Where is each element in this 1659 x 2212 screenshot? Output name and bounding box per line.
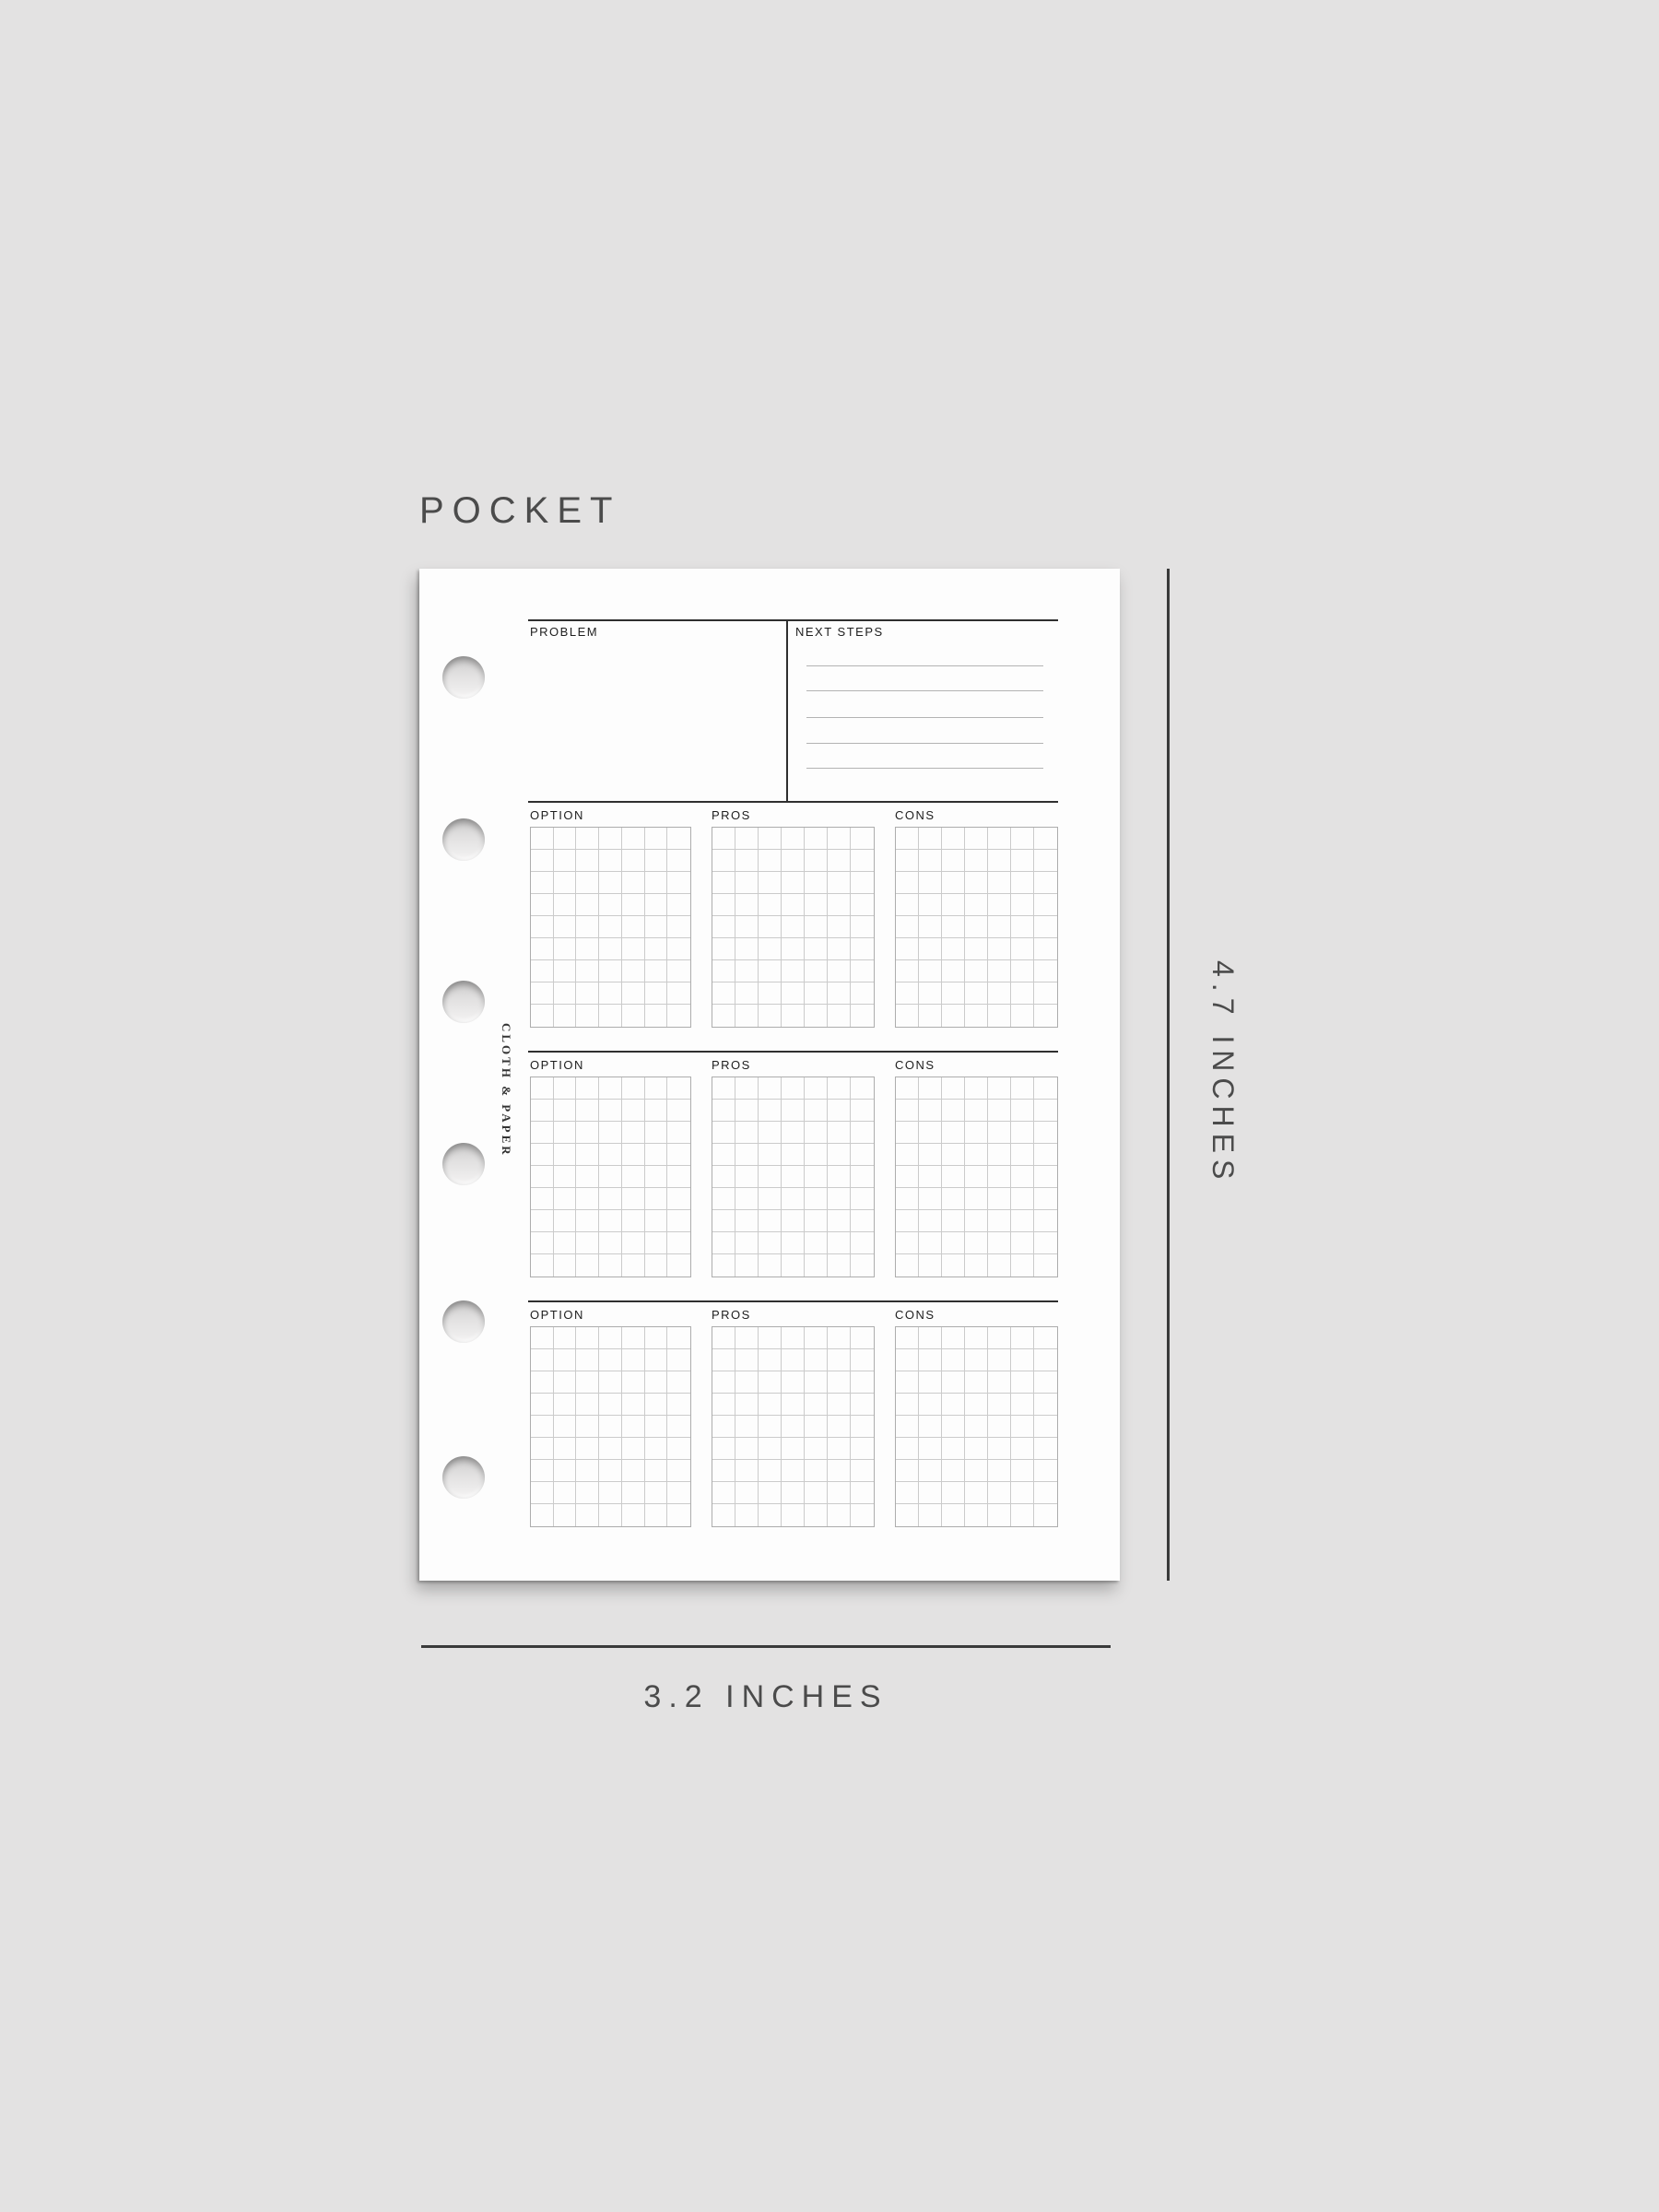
grid-cell <box>851 1371 874 1394</box>
cons-grid <box>895 1077 1058 1277</box>
grid-cell <box>622 1210 645 1232</box>
grid-cell <box>645 1394 668 1416</box>
grid-cell <box>576 1077 599 1100</box>
grid-cell <box>622 1349 645 1371</box>
grid-cell <box>712 1100 735 1122</box>
grid-cell <box>712 1232 735 1254</box>
grid-cell <box>622 1438 645 1460</box>
grid-cell <box>805 1460 828 1482</box>
grid-cell <box>622 938 645 960</box>
grid-cell <box>531 1005 554 1027</box>
grid-cell <box>1011 1254 1034 1277</box>
grid-cell <box>599 1327 622 1349</box>
grid-cell <box>667 1327 690 1349</box>
grid-cell <box>735 1005 759 1027</box>
grid-cell <box>759 1144 782 1166</box>
grid-cell <box>576 894 599 916</box>
grid-cell <box>988 1438 1011 1460</box>
grid-cell <box>735 850 759 872</box>
grid-cell <box>805 1077 828 1100</box>
grid-cell <box>988 1349 1011 1371</box>
grid-cell <box>576 1460 599 1482</box>
grid-cell <box>531 982 554 1005</box>
grid-cell <box>828 1210 851 1232</box>
grid-cell <box>851 1100 874 1122</box>
grid-cell <box>896 1327 919 1349</box>
grid-cell <box>896 960 919 982</box>
grid-cell <box>759 916 782 938</box>
grid-cell <box>576 916 599 938</box>
grid-cell <box>531 1371 554 1394</box>
grid-cell <box>1011 960 1034 982</box>
grid-cell <box>576 1210 599 1232</box>
grid-cell <box>851 1327 874 1349</box>
grid-cell <box>782 1482 805 1504</box>
grid-cell <box>735 1232 759 1254</box>
grid-cell <box>919 872 942 894</box>
grid-cell <box>965 1100 988 1122</box>
grid-cell <box>1034 1232 1057 1254</box>
grid-cell <box>576 1144 599 1166</box>
grid-cell <box>554 894 577 916</box>
grid-cell <box>805 1210 828 1232</box>
grid-cell <box>828 1077 851 1100</box>
grid-cell <box>782 1122 805 1144</box>
grid-cell <box>919 1122 942 1144</box>
grid-cell <box>712 1438 735 1460</box>
grid-cell <box>622 1005 645 1027</box>
grid-cell <box>554 938 577 960</box>
grid-cell <box>576 1349 599 1371</box>
grid-cell <box>735 982 759 1005</box>
cons-label: CONS <box>895 809 935 821</box>
grid-cell <box>1034 982 1057 1005</box>
grid-cell <box>759 1077 782 1100</box>
grid-cell <box>896 916 919 938</box>
grid-cell <box>531 894 554 916</box>
grid-cell <box>554 850 577 872</box>
grid-cell <box>531 1232 554 1254</box>
grid-cell <box>622 1394 645 1416</box>
grid-cell <box>805 982 828 1005</box>
grid-cell <box>1034 1504 1057 1526</box>
grid-cell <box>576 938 599 960</box>
grid-cell <box>828 1005 851 1027</box>
grid-cell <box>805 1188 828 1210</box>
grid-cell <box>851 1482 874 1504</box>
grid-cell <box>554 1254 577 1277</box>
grid-cell <box>554 1349 577 1371</box>
grid-cell <box>919 1438 942 1460</box>
grid-cell <box>828 1416 851 1438</box>
grid-cell <box>782 894 805 916</box>
grid-cell <box>988 1100 1011 1122</box>
grid-cell <box>645 828 668 850</box>
grid-cell <box>828 938 851 960</box>
grid-cell <box>531 960 554 982</box>
grid-cell <box>712 1144 735 1166</box>
grid-cell <box>919 1482 942 1504</box>
option-grid <box>530 1077 691 1277</box>
grid-cell <box>599 960 622 982</box>
grid-cell <box>1011 1166 1034 1188</box>
grid-cell <box>622 1144 645 1166</box>
grid-cell <box>576 1232 599 1254</box>
grid-cell <box>942 1460 965 1482</box>
grid-cell <box>759 828 782 850</box>
grid-cell <box>805 1416 828 1438</box>
grid-cell <box>805 828 828 850</box>
grid-cell <box>942 894 965 916</box>
grid-cell <box>667 872 690 894</box>
grid-cell <box>645 1166 668 1188</box>
grid-cell <box>828 1394 851 1416</box>
grid-cell <box>828 1166 851 1188</box>
grid-cell <box>667 982 690 1005</box>
grid-cell <box>988 828 1011 850</box>
grid-cell <box>622 1416 645 1438</box>
grid-cell <box>988 1460 1011 1482</box>
grid-cell <box>531 872 554 894</box>
height-dimension-line <box>1167 569 1170 1581</box>
grid-cell <box>805 1122 828 1144</box>
writing-line <box>806 743 1043 744</box>
grid-cell <box>554 1371 577 1394</box>
grid-cell <box>782 850 805 872</box>
grid-cell <box>531 828 554 850</box>
grid-cell <box>805 1504 828 1526</box>
grid-cell <box>896 1254 919 1277</box>
grid-cell <box>759 894 782 916</box>
grid-cell <box>988 916 1011 938</box>
grid-cell <box>554 1482 577 1504</box>
grid-cell <box>531 1416 554 1438</box>
grid-cell <box>919 1416 942 1438</box>
grid-cell <box>645 1482 668 1504</box>
brand-text: CLOTH & PAPER <box>489 1023 513 1130</box>
grid-cell <box>851 938 874 960</box>
grid-cell <box>942 1077 965 1100</box>
grid-cell <box>622 1327 645 1349</box>
next-steps-label: NEXT STEPS <box>795 626 884 638</box>
grid-cell <box>919 938 942 960</box>
grid-cell <box>896 850 919 872</box>
grid-cell <box>828 1482 851 1504</box>
grid-cell <box>851 1504 874 1526</box>
grid-cell <box>1011 1077 1034 1100</box>
grid-cell <box>1011 938 1034 960</box>
grid-cell <box>828 1100 851 1122</box>
grid-cell <box>828 1371 851 1394</box>
grid-cell <box>942 1482 965 1504</box>
grid-cell <box>554 916 577 938</box>
grid-cell <box>667 960 690 982</box>
grid-cell <box>759 1122 782 1144</box>
grid-cell <box>828 960 851 982</box>
grid-cell <box>942 1349 965 1371</box>
grid-cell <box>645 872 668 894</box>
grid-cell <box>828 1232 851 1254</box>
grid-cell <box>554 1460 577 1482</box>
grid-cell <box>735 1254 759 1277</box>
grid-cell <box>576 1005 599 1027</box>
grid-cell <box>1034 1460 1057 1482</box>
grid-cell <box>759 1349 782 1371</box>
grid-cell <box>942 1416 965 1438</box>
grid-cell <box>988 1077 1011 1100</box>
grid-cell <box>1034 894 1057 916</box>
grid-cell <box>735 872 759 894</box>
grid-cell <box>988 1232 1011 1254</box>
grid-cell <box>622 1460 645 1482</box>
grid-cell <box>942 1327 965 1349</box>
grid-cell <box>576 1100 599 1122</box>
grid-cell <box>554 982 577 1005</box>
grid-cell <box>531 850 554 872</box>
grid-cell <box>735 1188 759 1210</box>
grid-cell <box>531 1100 554 1122</box>
cons-label: CONS <box>895 1309 935 1321</box>
grid-cell <box>1011 1210 1034 1232</box>
grid-cell <box>599 1394 622 1416</box>
grid-cell <box>1011 1188 1034 1210</box>
cons-grid <box>895 1326 1058 1527</box>
grid-cell <box>828 1188 851 1210</box>
grid-cell <box>851 1144 874 1166</box>
grid-cell <box>531 1122 554 1144</box>
grid-cell <box>622 872 645 894</box>
grid-cell <box>599 872 622 894</box>
grid-cell <box>531 1077 554 1100</box>
row-rule <box>528 801 1058 803</box>
grid-cell <box>576 1504 599 1526</box>
header-divider <box>786 619 788 801</box>
grid-cell <box>576 1254 599 1277</box>
grid-cell <box>645 982 668 1005</box>
grid-cell <box>645 1327 668 1349</box>
grid-cell <box>622 894 645 916</box>
grid-cell <box>805 1349 828 1371</box>
grid-cell <box>919 916 942 938</box>
grid-cell <box>942 1394 965 1416</box>
grid-cell <box>576 1327 599 1349</box>
grid-cell <box>965 1394 988 1416</box>
grid-cell <box>622 828 645 850</box>
grid-cell <box>735 1122 759 1144</box>
grid-cell <box>554 1122 577 1144</box>
grid-cell <box>988 850 1011 872</box>
grid-cell <box>1011 872 1034 894</box>
grid-cell <box>759 1482 782 1504</box>
grid-cell <box>805 1166 828 1188</box>
grid-cell <box>805 850 828 872</box>
grid-cell <box>828 1122 851 1144</box>
grid-cell <box>782 1077 805 1100</box>
grid-cell <box>667 1416 690 1438</box>
grid-cell <box>919 1077 942 1100</box>
writing-line <box>806 768 1043 769</box>
grid-cell <box>828 1349 851 1371</box>
grid-cell <box>782 1349 805 1371</box>
grid-cell <box>851 828 874 850</box>
grid-cell <box>1011 1394 1034 1416</box>
grid-cell <box>645 1232 668 1254</box>
grid-cell <box>919 1210 942 1232</box>
grid-cell <box>896 872 919 894</box>
grid-cell <box>805 894 828 916</box>
grid-cell <box>988 982 1011 1005</box>
grid-cell <box>759 1371 782 1394</box>
grid-cell <box>1034 1327 1057 1349</box>
grid-cell <box>896 938 919 960</box>
grid-cell <box>919 1144 942 1166</box>
grid-cell <box>554 1210 577 1232</box>
grid-cell <box>554 1232 577 1254</box>
grid-cell <box>645 1460 668 1482</box>
grid-cell <box>942 938 965 960</box>
grid-cell <box>599 828 622 850</box>
grid-cell <box>576 1188 599 1210</box>
grid-cell <box>759 960 782 982</box>
grid-cell <box>554 1144 577 1166</box>
grid-cell <box>965 1005 988 1027</box>
grid-cell <box>942 1188 965 1210</box>
grid-cell <box>712 1416 735 1438</box>
grid-cell <box>622 1504 645 1526</box>
grid-cell <box>712 960 735 982</box>
option-label: OPTION <box>530 1059 584 1071</box>
grid-cell <box>1011 916 1034 938</box>
grid-cell <box>942 1144 965 1166</box>
grid-cell <box>576 828 599 850</box>
grid-cell <box>1011 850 1034 872</box>
grid-cell <box>782 1371 805 1394</box>
grid-cell <box>1011 1482 1034 1504</box>
grid-cell <box>896 828 919 850</box>
grid-cell <box>735 916 759 938</box>
grid-cell <box>576 982 599 1005</box>
pros-label: PROS <box>712 1309 751 1321</box>
grid-cell <box>599 1122 622 1144</box>
grid-cell <box>531 1394 554 1416</box>
writing-line <box>806 690 1043 691</box>
grid-cell <box>805 1394 828 1416</box>
grid-cell <box>1034 960 1057 982</box>
grid-cell <box>554 960 577 982</box>
binder-hole <box>442 818 485 861</box>
grid-cell <box>759 1438 782 1460</box>
grid-cell <box>919 1166 942 1188</box>
grid-cell <box>712 1254 735 1277</box>
grid-cell <box>782 1100 805 1122</box>
grid-cell <box>851 1460 874 1482</box>
grid-cell <box>965 1349 988 1371</box>
grid-cell <box>965 1460 988 1482</box>
pros-grid <box>712 1077 875 1277</box>
grid-cell <box>599 1349 622 1371</box>
grid-cell <box>531 916 554 938</box>
grid-cell <box>712 916 735 938</box>
grid-cell <box>554 1188 577 1210</box>
writing-line <box>806 665 1043 666</box>
grid-cell <box>965 1188 988 1210</box>
grid-cell <box>965 1122 988 1144</box>
grid-cell <box>919 1460 942 1482</box>
grid-cell <box>805 1005 828 1027</box>
grid-cell <box>965 1254 988 1277</box>
grid-cell <box>1011 1438 1034 1460</box>
grid-cell <box>645 1100 668 1122</box>
grid-cell <box>965 850 988 872</box>
grid-cell <box>576 1482 599 1504</box>
grid-cell <box>599 1188 622 1210</box>
grid-cell <box>645 960 668 982</box>
grid-cell <box>942 872 965 894</box>
binder-hole <box>442 1300 485 1343</box>
grid-cell <box>919 1504 942 1526</box>
grid-cell <box>759 1210 782 1232</box>
grid-cell <box>782 1166 805 1188</box>
grid-cell <box>1034 872 1057 894</box>
grid-cell <box>896 1416 919 1438</box>
grid-cell <box>942 1210 965 1232</box>
grid-cell <box>805 872 828 894</box>
grid-cell <box>805 1327 828 1349</box>
grid-cell <box>735 1327 759 1349</box>
grid-cell <box>942 1254 965 1277</box>
grid-cell <box>851 960 874 982</box>
grid-cell <box>1034 1482 1057 1504</box>
grid-cell <box>599 916 622 938</box>
grid-cell <box>782 1438 805 1460</box>
grid-cell <box>554 872 577 894</box>
grid-cell <box>599 1232 622 1254</box>
grid-cell <box>851 1416 874 1438</box>
grid-cell <box>622 1188 645 1210</box>
grid-cell <box>622 1371 645 1394</box>
grid-cell <box>896 1144 919 1166</box>
grid-cell <box>759 1254 782 1277</box>
grid-cell <box>576 1122 599 1144</box>
grid-cell <box>942 1232 965 1254</box>
grid-cell <box>554 1327 577 1349</box>
grid-cell <box>851 1077 874 1100</box>
grid-cell <box>667 1210 690 1232</box>
grid-cell <box>531 1166 554 1188</box>
grid-cell <box>1034 1349 1057 1371</box>
grid-cell <box>622 960 645 982</box>
grid-cell <box>576 850 599 872</box>
grid-cell <box>667 938 690 960</box>
grid-cell <box>712 1210 735 1232</box>
grid-cell <box>1011 1232 1034 1254</box>
grid-cell <box>645 1438 668 1460</box>
grid-cell <box>735 1210 759 1232</box>
grid-cell <box>942 1100 965 1122</box>
grid-cell <box>988 872 1011 894</box>
grid-cell <box>896 1438 919 1460</box>
grid-cell <box>988 1122 1011 1144</box>
grid-cell <box>851 1438 874 1460</box>
grid-cell <box>759 1100 782 1122</box>
grid-cell <box>782 1188 805 1210</box>
grid-cell <box>805 960 828 982</box>
grid-cell <box>759 1232 782 1254</box>
grid-cell <box>599 1460 622 1482</box>
grid-cell <box>919 1188 942 1210</box>
grid-cell <box>965 1210 988 1232</box>
grid-cell <box>712 850 735 872</box>
